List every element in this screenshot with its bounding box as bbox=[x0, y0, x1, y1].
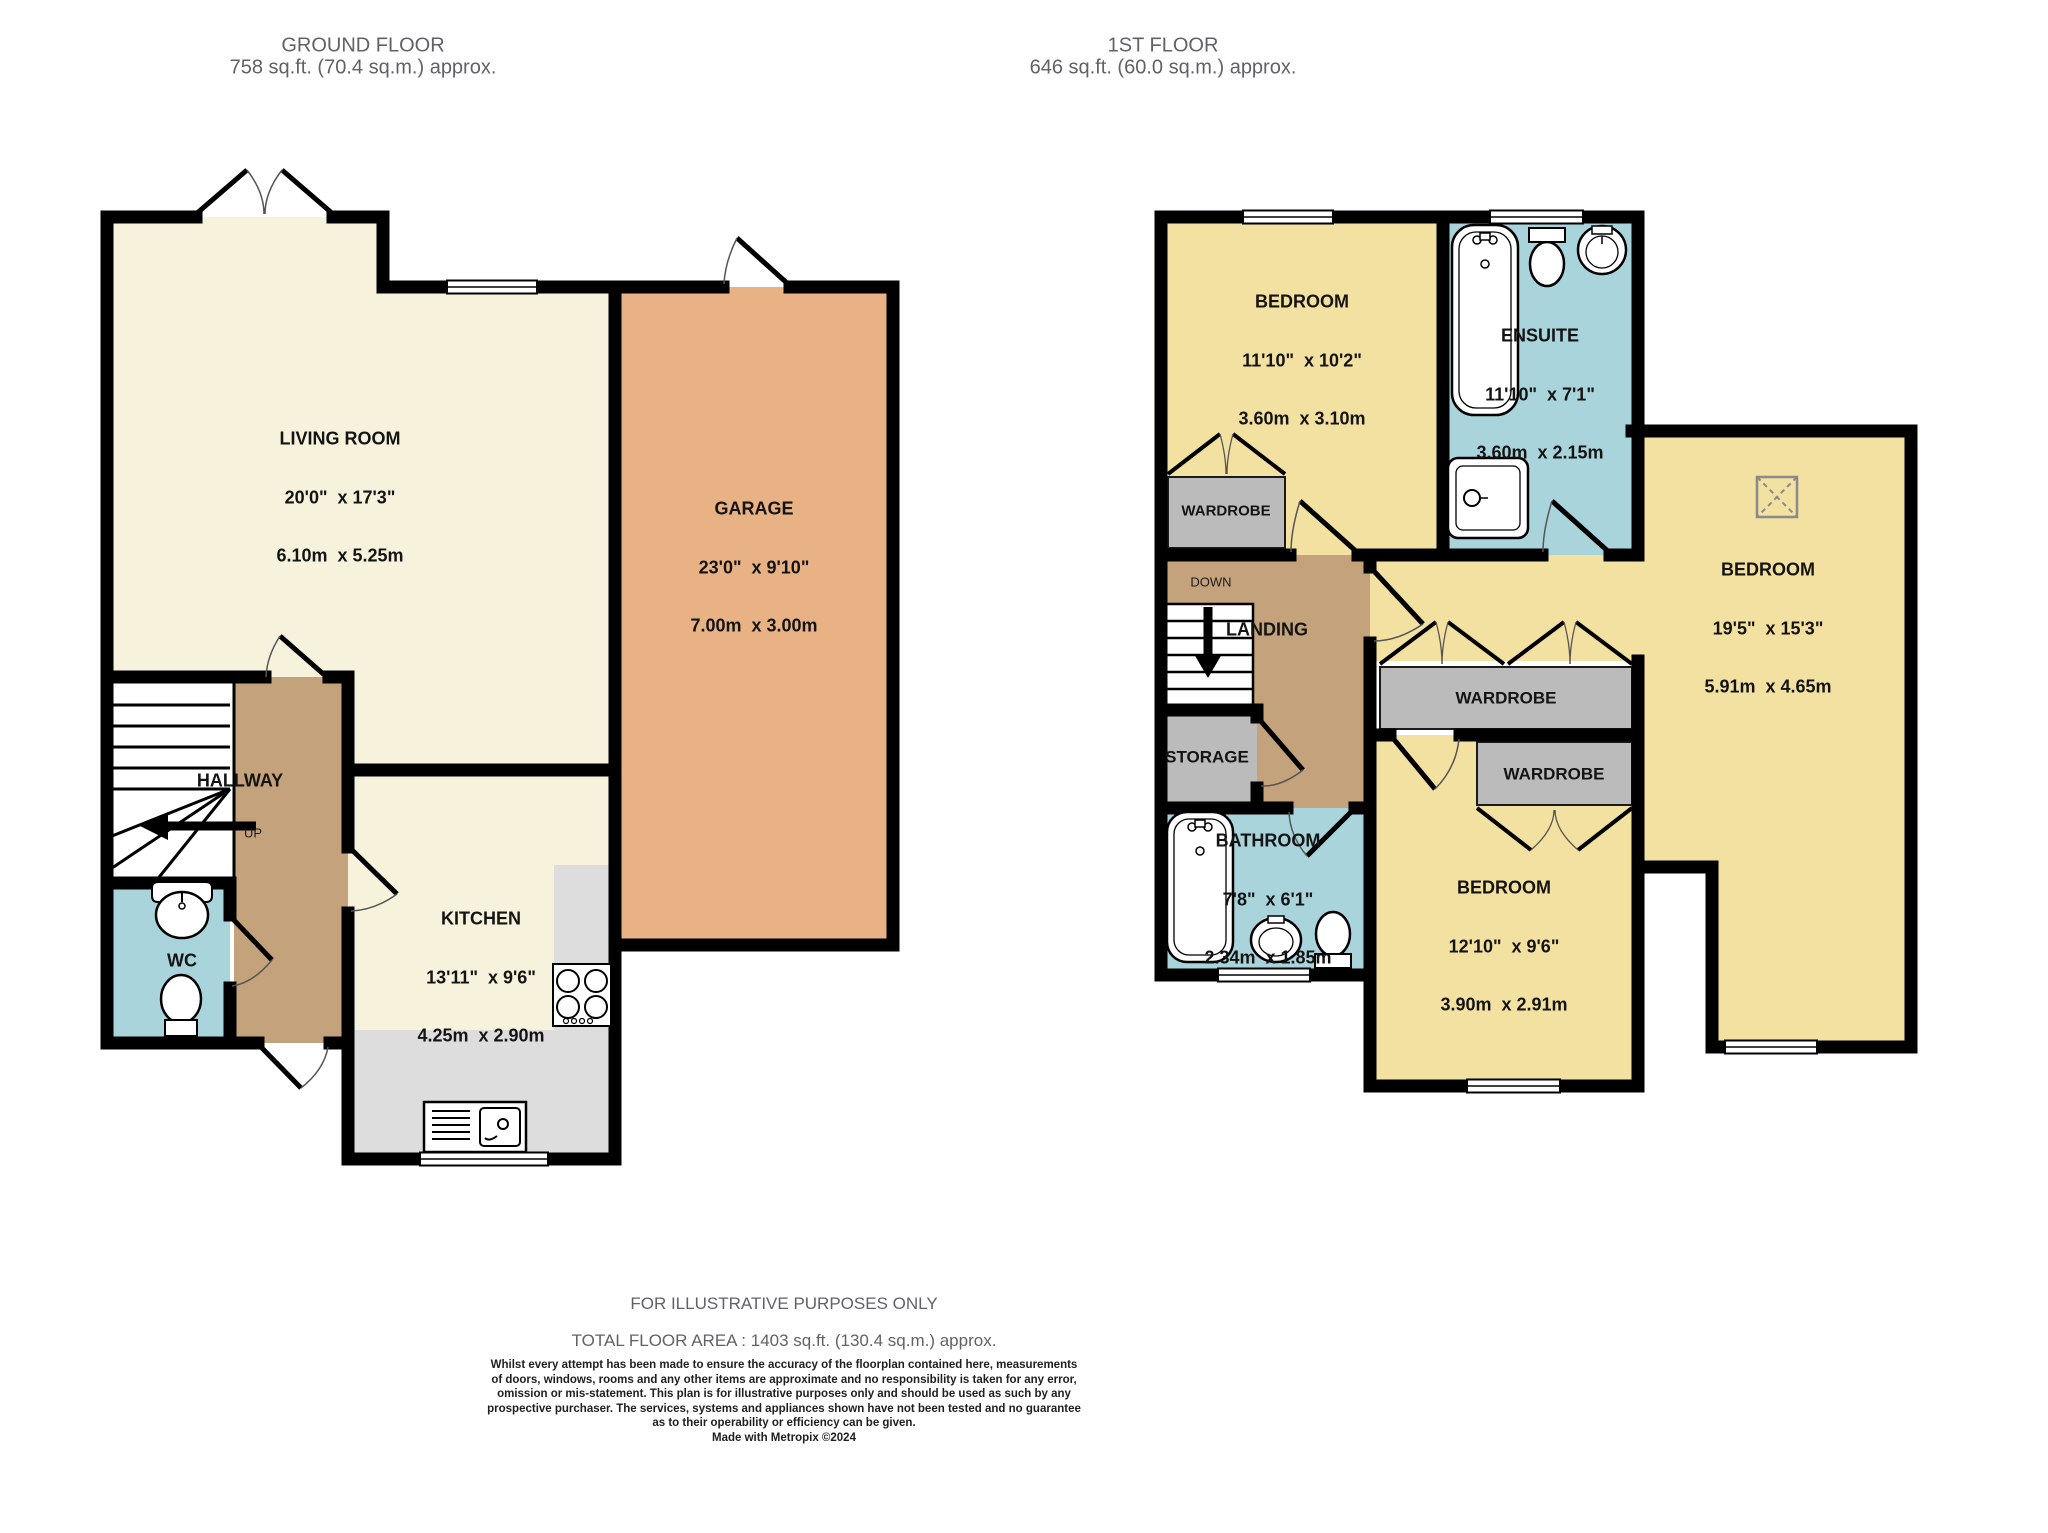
room-size-metric: 3.60m x 3.10m bbox=[1238, 410, 1365, 430]
bedroom1-label: BEDROOM 11'10" x 10'2" 3.60m x 3.10m bbox=[1238, 254, 1365, 449]
room-name: LIVING ROOM bbox=[276, 430, 403, 450]
room-size-imperial: 11'10" x 7'1" bbox=[1476, 385, 1603, 405]
disclaimer-line: Whilst every attempt has been made to en… bbox=[184, 1358, 1384, 1373]
front-door bbox=[260, 1046, 328, 1088]
room-size-metric: 4.25m x 2.90m bbox=[417, 1027, 544, 1047]
room-name: BEDROOM bbox=[1704, 561, 1831, 581]
bedroom1-window bbox=[1243, 211, 1333, 224]
first-floor-title: 1ST FLOOR bbox=[1108, 36, 1219, 56]
room-size-imperial: 13'11" x 9'6" bbox=[417, 968, 544, 988]
landing-label: LANDING bbox=[1226, 620, 1308, 640]
hob-icon bbox=[553, 964, 611, 1026]
room-size-imperial: 7'8" x 6'1" bbox=[1204, 890, 1331, 910]
bedroom2-label: BEDROOM 19'5" x 15'3" 5.91m x 4.65m bbox=[1704, 522, 1831, 717]
illustrative-note: FOR ILLUSTRATIVE PURPOSES ONLY bbox=[630, 1294, 937, 1314]
hallway-label: HALLWAY bbox=[197, 771, 283, 791]
room-size-metric: 3.90m x 2.91m bbox=[1440, 996, 1567, 1016]
bedroom3-label: BEDROOM 12'10" x 9'6" 3.90m x 2.91m bbox=[1440, 840, 1567, 1035]
floorplan-page: GROUND FLOOR 758 sq.ft. (70.4 sq.m.) app… bbox=[0, 0, 2048, 1533]
kitchen-window bbox=[420, 1153, 548, 1166]
ensuite-toilet-icon bbox=[1529, 228, 1565, 286]
room-name: ENSUITE bbox=[1476, 327, 1603, 347]
ensuite-label: ENSUITE 11'10" x 7'1" 3.60m x 2.15m bbox=[1476, 288, 1603, 483]
garage-label: GARAGE 23'0" x 9'10" 7.00m x 3.00m bbox=[690, 461, 817, 656]
room-size-imperial: 20'0" x 17'3" bbox=[276, 488, 403, 508]
storage-label: STORAGE bbox=[1165, 747, 1249, 767]
wc-label: WC bbox=[167, 951, 197, 971]
wc-toilet-icon bbox=[161, 975, 201, 1036]
room-size-metric: 3.60m x 2.15m bbox=[1476, 444, 1603, 464]
room-size-imperial: 23'0" x 9'10" bbox=[690, 558, 817, 578]
room-size-metric: 2.34m x 1.85m bbox=[1204, 949, 1331, 969]
ground-floor-subtitle: 758 sq.ft. (70.4 sq.m.) approx. bbox=[230, 58, 497, 78]
room-name: BEDROOM bbox=[1440, 879, 1567, 899]
bedroom3-wardrobe-label: WARDROBE bbox=[1503, 764, 1604, 784]
ensuite-window bbox=[1490, 211, 1583, 224]
disclaimer-text: Whilst every attempt has been made to en… bbox=[184, 1358, 1384, 1446]
disclaimer-line: of doors, windows, rooms and any other i… bbox=[184, 1373, 1384, 1388]
total-floor-area: TOTAL FLOOR AREA : 1403 sq.ft. (130.4 sq… bbox=[572, 1331, 997, 1351]
disclaimer-line: prospective purchaser. The services, sys… bbox=[184, 1402, 1384, 1417]
down-label: DOWN bbox=[1190, 572, 1231, 592]
garage-door bbox=[724, 238, 788, 284]
ensuite-sink-icon bbox=[1578, 226, 1626, 274]
room-size-metric: 7.00m x 3.00m bbox=[690, 617, 817, 637]
living-room-label: LIVING ROOM 20'0" x 17'3" 6.10m x 5.25m bbox=[276, 391, 403, 586]
room-name: KITCHEN bbox=[417, 910, 544, 930]
hallway-fill bbox=[234, 677, 348, 1043]
bedroom2-wardrobe-label: WARDROBE bbox=[1455, 688, 1556, 708]
disclaimer-line: as to their operability or efficiency ca… bbox=[184, 1416, 1384, 1431]
room-size-imperial: 19'5" x 15'3" bbox=[1704, 619, 1831, 639]
floorplan-geometry bbox=[0, 0, 2048, 1533]
bathroom-label: BATHROOM 7'8" x 6'1" 2.34m x 1.85m bbox=[1204, 793, 1331, 988]
room-name: BATHROOM bbox=[1204, 832, 1331, 852]
room-size-imperial: 11'10" x 10'2" bbox=[1238, 351, 1365, 371]
wc-sink-icon bbox=[152, 882, 212, 938]
room-size-metric: 6.10m x 5.25m bbox=[276, 547, 403, 567]
up-label: UP bbox=[244, 823, 262, 843]
bedroom1-wardrobe-label: WARDROBE bbox=[1181, 501, 1270, 521]
room-size-imperial: 12'10" x 9'6" bbox=[1440, 937, 1567, 957]
bedroom3-window bbox=[1467, 1080, 1560, 1093]
bedroom2-window bbox=[1725, 1041, 1817, 1054]
first-floor-subtitle: 646 sq.ft. (60.0 sq.m.) approx. bbox=[1030, 58, 1297, 78]
room-name: GARAGE bbox=[690, 500, 817, 520]
kitchen-label: KITCHEN 13'11" x 9'6" 4.25m x 2.90m bbox=[417, 871, 544, 1066]
french-doors bbox=[196, 170, 333, 214]
living-window bbox=[447, 281, 537, 294]
metropix-credit: Made with Metropix ©2024 bbox=[184, 1431, 1384, 1446]
room-size-metric: 5.91m x 4.65m bbox=[1704, 678, 1831, 698]
disclaimer-line: omission or mis-statement. This plan is … bbox=[184, 1387, 1384, 1402]
kitchen-sink-icon bbox=[424, 1102, 526, 1152]
room-name: BEDROOM bbox=[1238, 293, 1365, 313]
ground-floor-title: GROUND FLOOR bbox=[281, 36, 444, 56]
